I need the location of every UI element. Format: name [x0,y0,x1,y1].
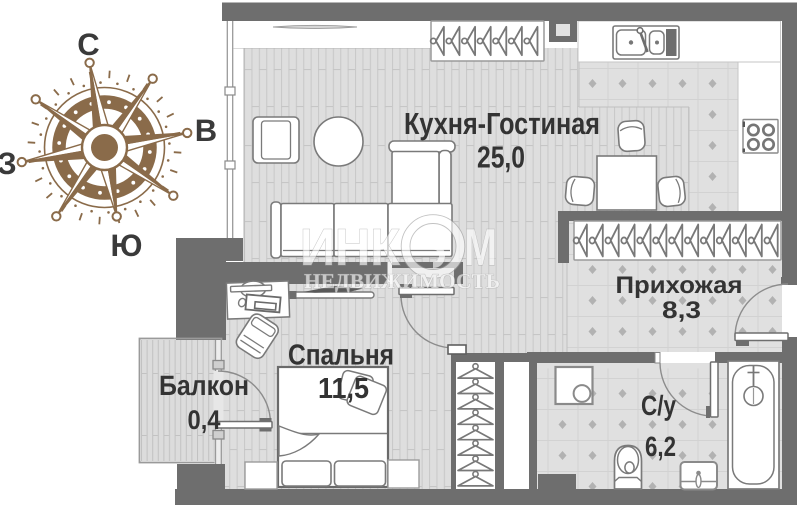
svg-text:Кухня-Гостиная: Кухня-Гостиная [404,107,600,141]
svg-text:Спальня: Спальня [288,340,394,372]
svg-text:С: С [77,27,99,62]
svg-text:В: В [195,113,217,148]
svg-text:Ю: Ю [111,228,143,263]
svg-text:С/у: С/у [641,390,676,421]
svg-text:Прихожая: Прихожая [616,272,743,299]
svg-text:0,4: 0,4 [188,405,221,435]
svg-text:8,3: 8,3 [662,297,701,324]
svg-text:НЕДВИЖИМОСТЬ: НЕДВИЖИМОСТЬ [304,269,500,293]
svg-text:Балкон: Балкон [159,370,249,401]
svg-text:6,2: 6,2 [645,431,676,462]
svg-text:З: З [0,146,17,181]
svg-text:25,0: 25,0 [477,141,525,175]
svg-text:11,5: 11,5 [318,373,369,405]
